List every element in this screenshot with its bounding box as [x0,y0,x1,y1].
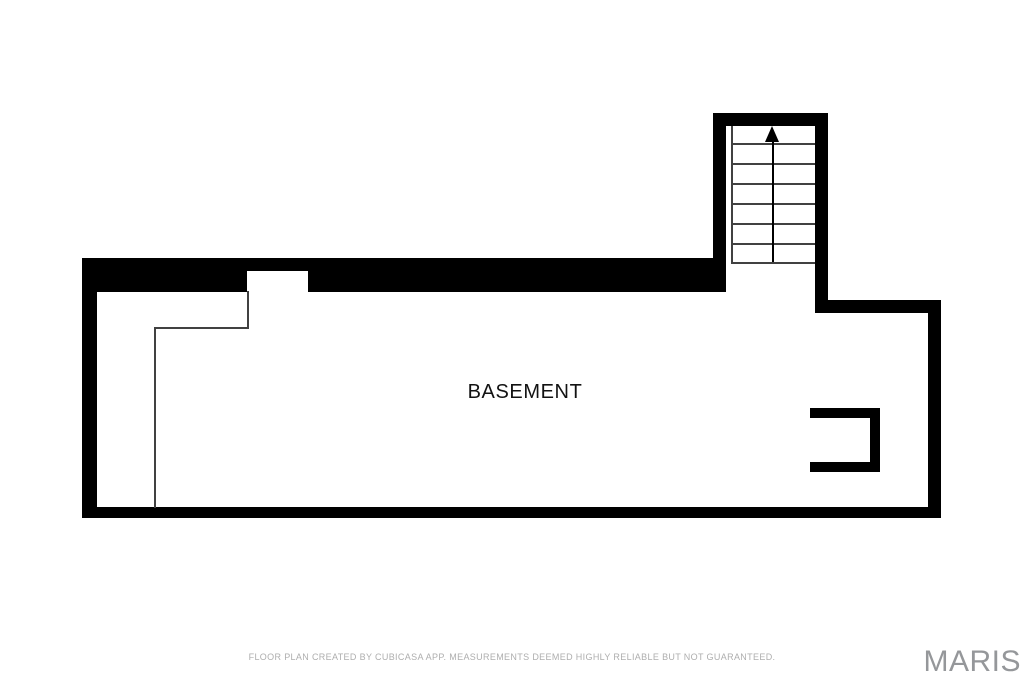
stair-step-line [731,262,815,264]
maris-logo: MARIS [923,645,1021,679]
interior-partition-line-vertical-right [247,291,249,329]
top-wall-left [82,258,247,292]
left-wall [82,258,97,518]
top-wall-right [308,258,723,292]
room-label-basement: BASEMENT [405,381,645,404]
right-section-top-wall [815,300,941,313]
top-wall-window-segment [247,258,308,271]
right-wall [928,300,941,518]
alcove-bottom-wall [810,462,880,472]
interior-partition-line-horizontal [154,327,249,329]
stairwell-top-wall [713,113,828,126]
disclaimer-text: FLOOR PLAN CREATED BY CUBICASA APP. MEAS… [0,652,1024,662]
up-arrow-icon [765,126,779,142]
stair-arrow-line [772,142,774,262]
stairwell-left-wall [713,113,726,292]
floor-plan-image: BASEMENT FLOOR PLAN CREATED BY CUBICASA … [0,0,1024,682]
interior-partition-line-vertical-left [154,327,156,508]
stairwell-right-wall [815,113,828,313]
bottom-wall [82,507,941,518]
